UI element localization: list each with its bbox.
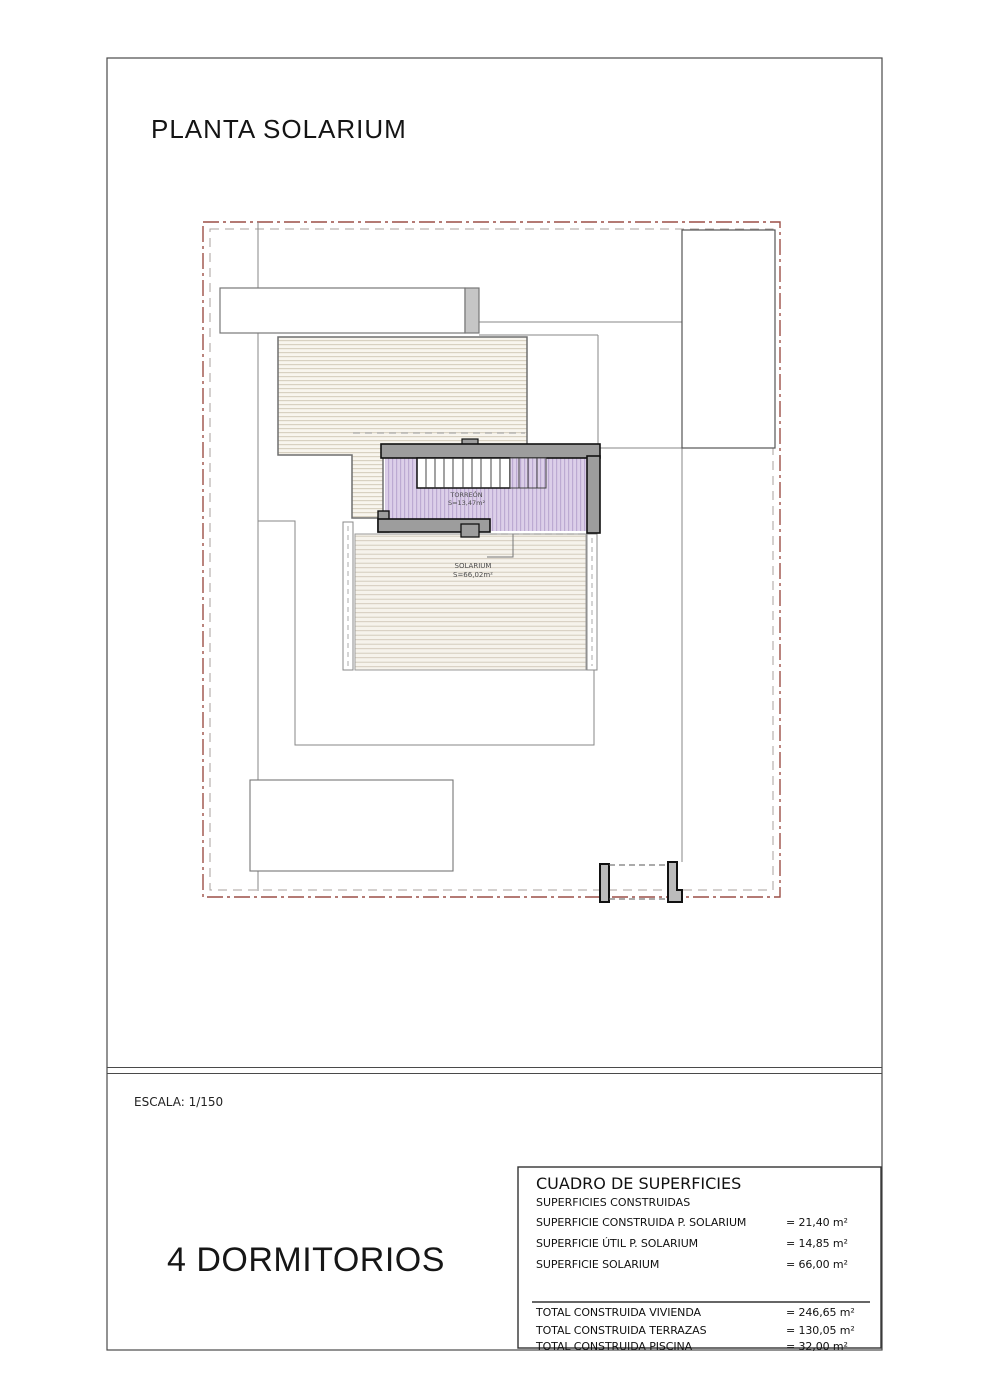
garden-structure bbox=[250, 780, 453, 871]
total-value: = 32,00 m² bbox=[786, 1340, 848, 1353]
plan-sheet: PLANTA SOLARIUM TORREÓN S=13,47m² SOLARI… bbox=[0, 0, 989, 1400]
solarium-terrace bbox=[343, 522, 597, 670]
torreon-area: S=13,47m² bbox=[424, 499, 509, 507]
total-label: TOTAL CONSTRUIDA PISCINA bbox=[536, 1340, 692, 1353]
pergola-bar bbox=[220, 288, 479, 333]
row-value: = 21,40 m² bbox=[786, 1216, 848, 1229]
solarium-name: SOLARIUM bbox=[428, 562, 518, 571]
solarium-label: SOLARIUM S=66,02m² bbox=[428, 562, 518, 580]
page-title: PLANTA SOLARIUM bbox=[151, 114, 407, 145]
row-value: = 14,85 m² bbox=[786, 1237, 848, 1250]
torreon-room bbox=[378, 439, 600, 537]
row-label: SUPERFICIE ÚTIL P. SOLARIUM bbox=[536, 1237, 698, 1250]
entrance-gate bbox=[600, 862, 682, 902]
row-label: SUPERFICIE CONSTRUIDA P. SOLARIUM bbox=[536, 1216, 746, 1229]
row-label: SUPERFICIE SOLARIUM bbox=[536, 1258, 659, 1271]
total-value: = 130,05 m² bbox=[786, 1324, 855, 1337]
torreon-label: TORREÓN S=13,47m² bbox=[424, 491, 509, 508]
total-label: TOTAL CONSTRUIDA TERRAZAS bbox=[536, 1324, 706, 1337]
side-structure bbox=[682, 230, 775, 448]
surfaces-table-title: CUADRO DE SUPERFICIES bbox=[536, 1174, 741, 1193]
floor-plan-drawing bbox=[0, 0, 989, 1400]
solarium-area: S=66,02m² bbox=[428, 571, 518, 580]
torreon-name: TORREÓN bbox=[424, 491, 509, 499]
surfaces-table-subtitle: SUPERFICIES CONSTRUIDAS bbox=[536, 1196, 690, 1209]
total-value: = 246,65 m² bbox=[786, 1306, 855, 1319]
total-label: TOTAL CONSTRUIDA VIVIENDA bbox=[536, 1306, 701, 1319]
bedrooms-label: 4 DORMITORIOS bbox=[167, 1241, 445, 1280]
stairs bbox=[417, 458, 546, 488]
row-value: = 66,00 m² bbox=[786, 1258, 848, 1271]
scale-label: ESCALA: 1/150 bbox=[134, 1095, 223, 1109]
